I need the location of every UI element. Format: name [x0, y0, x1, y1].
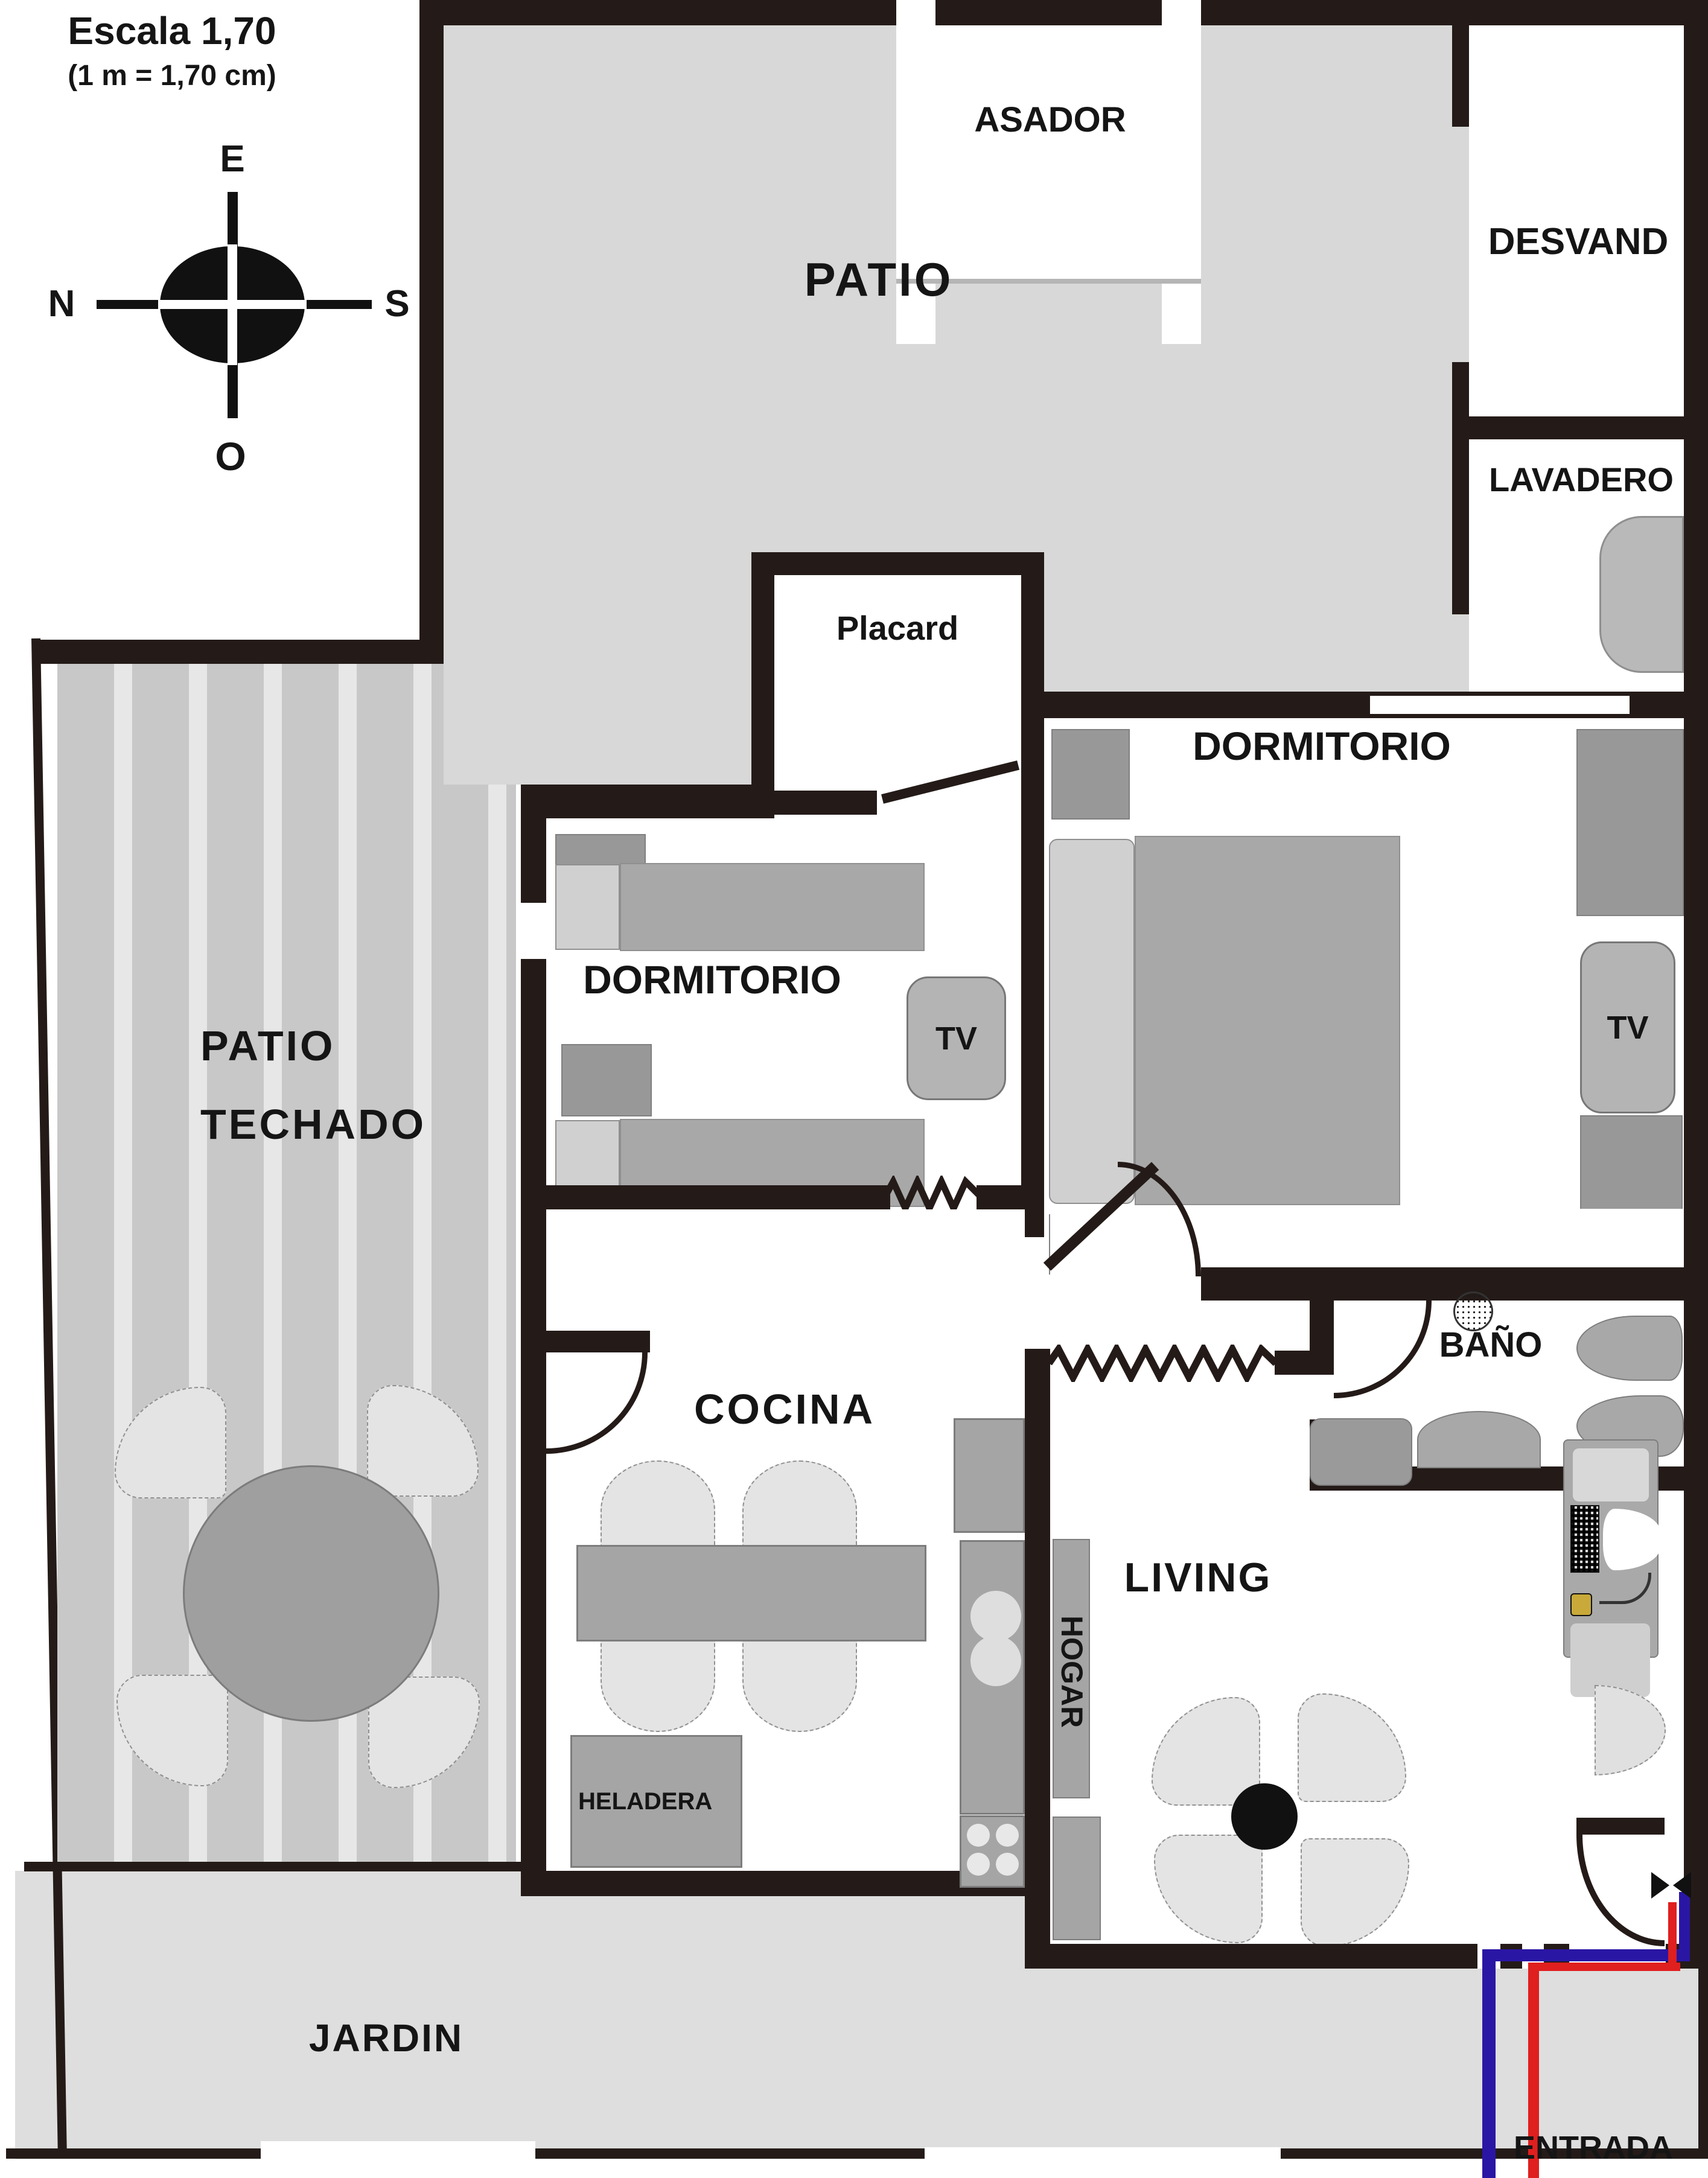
entry-arrow-left-icon	[1651, 1872, 1669, 1899]
heladera-label: HELADERA	[578, 1788, 712, 1815]
cocina-counter-upper	[954, 1418, 1025, 1533]
placard-label: Placard	[777, 608, 1018, 648]
cocina-label: COCINA	[604, 1385, 966, 1433]
entry-line-red-v2	[1668, 1902, 1677, 1963]
cocina-chair-4	[742, 1629, 857, 1732]
dorm-right-tv-label: TV	[1607, 1009, 1648, 1046]
dorm-right-bed-mattress	[1135, 836, 1400, 1205]
hall-living-stub	[1275, 1351, 1334, 1375]
cocina-table	[576, 1545, 926, 1641]
desvand-label: DESVAND	[1467, 220, 1690, 263]
dorm-left-tv-label: TV	[935, 1020, 977, 1057]
entry-line-red-h	[1528, 1963, 1680, 1971]
compass-label-s: S	[379, 282, 415, 325]
dorm-left-bottom-wall-b	[977, 1185, 1021, 1209]
dorm-left-top-wall	[521, 785, 751, 818]
compass-label-o: O	[212, 433, 249, 479]
compass-cross-v	[228, 244, 237, 365]
jardin-label: JARDIN	[205, 2016, 567, 2060]
living-center-table	[1231, 1783, 1298, 1850]
placard-top-wall	[751, 552, 1044, 575]
dorm-right-window-line-top	[1370, 692, 1630, 696]
window-zigzag-small	[885, 1176, 981, 1214]
scale-subtitle: (1 m = 1,70 cm)	[42, 59, 302, 92]
dorm-left-window-gap	[521, 899, 546, 963]
central-wall-upper	[1021, 552, 1044, 1237]
patio-techado-bottom-line	[24, 1862, 521, 1871]
tv-unit-speaker	[1570, 1505, 1599, 1573]
patio-left-wall	[419, 0, 444, 664]
dorm-left-window-line-top	[521, 899, 546, 903]
asador-body	[896, 25, 1201, 284]
dorm-left-bed1-mattress	[620, 863, 925, 951]
dorm-right-label: DORMITORIO	[1141, 723, 1503, 769]
cocina-chair-3	[601, 1629, 715, 1732]
entry-line-blue-h	[1482, 1949, 1690, 1961]
desvand-left-wall-stub	[1452, 25, 1469, 127]
entry-arrow-right-icon	[1673, 1872, 1691, 1899]
outer-wall-right	[1684, 25, 1708, 1944]
patio-table	[183, 1465, 439, 1722]
bano-label: BAÑO	[1376, 1325, 1605, 1365]
compass-arm-bottom	[228, 361, 238, 418]
outer-wall-top	[419, 0, 1708, 25]
dorm-right-nightstand-1	[1051, 729, 1130, 820]
placard-bottom-stub	[774, 791, 877, 815]
lavadero-sink	[1599, 516, 1684, 673]
heladera: HELADERA	[570, 1735, 742, 1868]
hogar-fireplace-lower	[1053, 1817, 1101, 1940]
patio-label: PATIO	[758, 252, 999, 307]
compass-arm-right	[301, 300, 372, 309]
cocina-door-leaf	[546, 1331, 650, 1352]
patio-techado-line2: TECHADO	[200, 1085, 426, 1164]
bano-left-wall-upper	[1310, 1301, 1334, 1353]
garden-path-left	[261, 2141, 535, 2178]
dorm-right-bottom-wall	[1201, 1267, 1708, 1301]
dorm-right-wardrobe	[1576, 729, 1684, 916]
lavadero-label: LAVADERO	[1461, 460, 1702, 499]
dorm-right-bed-pillow	[1049, 839, 1135, 1204]
compass-arm-top	[228, 192, 238, 249]
living-label: LIVING	[1077, 1554, 1319, 1601]
garden-path-right	[925, 2147, 1281, 2178]
entrance-door-leaf	[1576, 1818, 1665, 1835]
stove-burner-4	[996, 1853, 1019, 1876]
hogar-label: HOGAR	[1054, 1584, 1089, 1759]
stove-burner-2	[996, 1824, 1019, 1847]
window-zigzag-large	[1048, 1345, 1278, 1382]
stove-burner-3	[967, 1853, 990, 1876]
tv-unit-console	[1570, 1593, 1592, 1616]
scale-title: Escala 1,70	[48, 8, 296, 53]
cocina-sink-bowl-2	[970, 1635, 1021, 1686]
patio-techado-label: PATIO TECHADO	[200, 1007, 426, 1164]
asador-label: ASADOR	[923, 100, 1177, 140]
compass-label-n: N	[43, 282, 80, 325]
dorm-right-window-line-bottom	[1370, 714, 1630, 718]
dorm-left-bottom-wall-a	[521, 1185, 890, 1209]
tv-unit-shelf-top	[1573, 1448, 1649, 1501]
floor-plan: ASADOR DESVAND LAVADERO Placard DORMITOR…	[0, 0, 1708, 2178]
dorm-left-label: DORMITORIO	[531, 957, 893, 1002]
compass-label-e: E	[214, 138, 250, 180]
stove-burner-1	[967, 1824, 990, 1847]
desvand-lavadero-divider	[1452, 416, 1708, 439]
cocina-sink-bowl-1	[970, 1591, 1021, 1641]
dorm-left-bed1-pillow	[555, 864, 620, 950]
bano-sink	[1417, 1411, 1541, 1468]
hogar-label-text: HOGAR	[1055, 1616, 1089, 1728]
dorm-left-tv: TV	[907, 976, 1006, 1100]
entrada-label: ENTRADA	[1479, 2129, 1708, 2167]
patio-techado-top-wall	[33, 640, 444, 664]
shower-head-icon	[1453, 1291, 1493, 1331]
dorm-left-nightstand-2	[561, 1044, 652, 1116]
entry-line-blue-v2	[1679, 1892, 1690, 1952]
property-wall-right-bottom	[1698, 1969, 1708, 2153]
patio-techado-line1: PATIO	[200, 1007, 426, 1085]
placard-left-wall	[751, 552, 774, 821]
dorm-right-tv: TV	[1580, 941, 1675, 1113]
compass-arm-left	[97, 300, 164, 309]
dorm-right-top-wall-b	[1630, 692, 1684, 718]
dorm-right-top-wall-a	[1021, 692, 1370, 718]
living-side-table	[1310, 1418, 1412, 1486]
